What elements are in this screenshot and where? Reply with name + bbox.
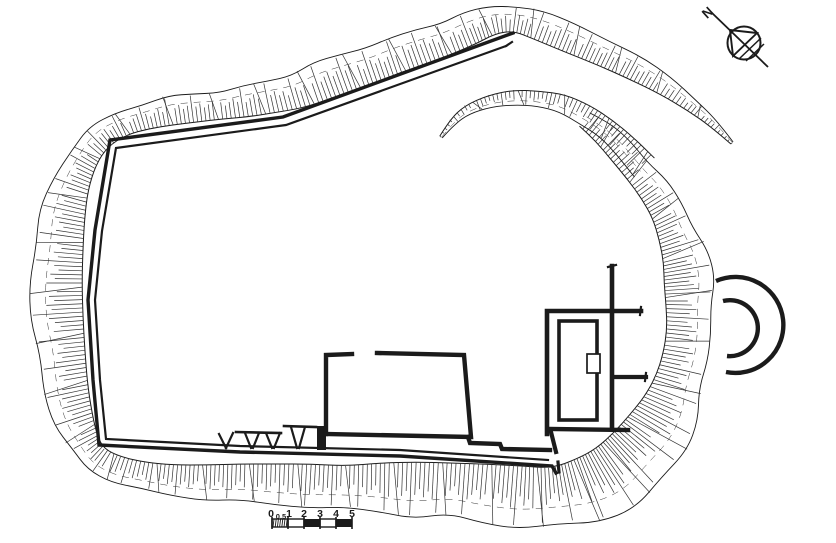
hachure-tick — [688, 105, 693, 111]
hachure-tick — [531, 9, 534, 38]
hachure-tick — [524, 466, 526, 505]
hachure-tick — [684, 103, 688, 108]
hachure-tick — [271, 95, 275, 113]
hachure-tick — [664, 273, 691, 277]
hachure-tick — [472, 24, 479, 43]
hachure-tick — [450, 37, 456, 53]
hachure-tick — [345, 70, 352, 90]
hachure-tick — [668, 90, 674, 99]
hachure-tick — [402, 462, 403, 496]
hachure-tick — [659, 233, 678, 240]
hachure-tick — [454, 116, 458, 121]
hachure-tick — [445, 463, 447, 496]
hachure-tick — [79, 421, 94, 427]
hachure-tick — [200, 104, 202, 122]
scale-cell-black — [304, 519, 320, 527]
hachure-tick — [648, 390, 672, 399]
hachure-tick — [518, 90, 524, 105]
hachure-tick — [225, 106, 227, 119]
hachure-tick — [175, 108, 177, 124]
hachure-tick — [57, 244, 83, 247]
hachure-tick — [130, 122, 134, 133]
hachure-tick — [56, 230, 84, 234]
hachure-tick — [616, 47, 622, 73]
hachure-tick — [185, 465, 186, 482]
hachure-tick — [666, 313, 689, 314]
hachure-tick — [583, 122, 589, 129]
hachure-tick — [484, 97, 486, 103]
hachure-tick — [610, 129, 624, 145]
hachure-tick — [711, 124, 714, 127]
north-arrow: N — [699, 4, 768, 67]
hachure-tick — [58, 257, 83, 259]
hachure-tick — [644, 397, 681, 413]
tower-outer-arc — [716, 277, 783, 373]
hachure-tick — [660, 365, 701, 375]
scale-bar-graphic — [272, 517, 352, 529]
site-plan-drawing: N 0 0.5 1 2 3 4 5 — [0, 0, 836, 543]
hachure-tick — [662, 357, 689, 362]
hachure-tick — [136, 115, 141, 131]
hachure-tick — [54, 300, 82, 301]
hachure-tick — [44, 380, 87, 394]
hachure-tick — [623, 422, 673, 460]
hachure-tick — [398, 463, 399, 488]
hachure-tick — [505, 92, 506, 100]
hachure-tick — [513, 8, 516, 31]
hachure-tick — [120, 458, 124, 470]
hachure-tick — [52, 308, 83, 310]
hachure-tick — [163, 464, 165, 479]
hachure-tick — [190, 96, 193, 123]
hachure-tick — [386, 41, 397, 73]
hachure-tick — [458, 35, 463, 49]
hachure-tick — [55, 320, 83, 322]
hachure-tick — [632, 177, 643, 186]
hachure-tick — [71, 175, 91, 183]
hachure-tick — [635, 409, 667, 427]
hachure-tick — [644, 193, 657, 202]
hachure-tick — [233, 98, 236, 117]
hachure-tick — [472, 464, 474, 495]
hachure-tick — [437, 27, 448, 56]
hachure-tick — [367, 464, 368, 494]
band-texture-contour — [441, 101, 640, 172]
hachure-tick — [455, 463, 456, 486]
hachure-tick — [663, 353, 685, 357]
hachure-tick — [601, 444, 623, 474]
hachure-tick — [594, 450, 615, 485]
hachure-tick — [288, 95, 292, 109]
hachure-tick — [94, 143, 104, 152]
hachure-tick — [129, 460, 133, 474]
hachure-tick — [565, 463, 573, 496]
hachure-tick — [667, 321, 688, 322]
hachure-tick — [610, 123, 616, 130]
hachure-tick — [635, 172, 657, 189]
hachure-tick — [524, 19, 528, 35]
hachure-tick — [154, 113, 157, 127]
hachure-tick — [266, 464, 267, 490]
hachure-tick — [62, 355, 85, 358]
building-wall — [640, 307, 641, 315]
scale-bar: 0 0.5 1 2 3 4 5 — [268, 508, 355, 529]
hachure-tick — [300, 90, 305, 106]
building-walls — [326, 265, 646, 472]
hachure-tick — [569, 98, 573, 107]
hachure-tick — [150, 116, 153, 128]
hachure-tick — [389, 463, 390, 497]
north-label: N — [699, 4, 716, 22]
hachure-tick — [240, 88, 244, 117]
hachure-tick — [649, 203, 664, 212]
hachure-tick — [363, 69, 369, 85]
hachure-tick — [640, 403, 674, 420]
hachure-tick — [627, 142, 638, 153]
hachure-tick — [159, 464, 161, 481]
hachure-tick — [231, 464, 232, 488]
hachure-tick — [246, 102, 248, 117]
hachure-tick — [458, 463, 460, 495]
hachure-tick — [61, 325, 84, 327]
hachure-tick — [58, 342, 84, 345]
hachure-tick — [728, 140, 729, 141]
hachure-tick — [667, 325, 692, 327]
building-wall — [549, 429, 628, 430]
hachure-tick — [331, 465, 333, 505]
hachure-tick — [58, 350, 85, 353]
hachure-tick — [63, 227, 84, 230]
hachure-tick — [558, 94, 561, 104]
hachure-tick — [526, 91, 527, 105]
enclosure-wall-line — [506, 42, 512, 46]
hachure-tick — [566, 40, 571, 52]
hachure-tick — [642, 155, 651, 164]
hachure-tick — [698, 105, 701, 117]
hachure-tick — [492, 464, 493, 524]
hachure-tick — [445, 128, 447, 130]
hachure-tick — [411, 45, 419, 67]
hachure-tick — [250, 98, 253, 116]
hachure-tick — [493, 465, 496, 499]
hachure-tick — [664, 276, 696, 280]
building-wall — [608, 265, 616, 267]
hachure-tick — [510, 466, 513, 508]
hachure-tick — [627, 56, 638, 77]
hachure-tick — [721, 133, 723, 135]
hachure-tick — [358, 465, 359, 507]
hachure-tick — [411, 33, 423, 65]
hachure-tick — [258, 99, 261, 115]
hachure-tick — [62, 214, 84, 219]
hachure-tick — [327, 465, 328, 488]
hachure-tick — [652, 383, 701, 393]
hachure-tick — [478, 27, 483, 41]
hachure-tick — [596, 449, 633, 506]
scale-label-0: 0 — [268, 508, 274, 520]
hachure-tick — [549, 468, 551, 499]
hachure-tick — [428, 462, 429, 491]
hachure-tick — [59, 222, 84, 226]
hachure-tick — [568, 462, 575, 490]
hachure-tick — [183, 109, 185, 123]
hachure-tick — [661, 84, 668, 95]
hachure-tick — [121, 459, 129, 483]
hachure-tick — [54, 252, 83, 255]
hachure-tick — [501, 93, 503, 106]
hachure-tick — [480, 464, 483, 499]
hachure-tick — [149, 463, 153, 489]
hachure-tick — [50, 274, 82, 275]
hachure-tick — [56, 359, 86, 363]
hachure-tick — [283, 91, 288, 110]
hachure-tick — [599, 115, 605, 123]
hachure-tick — [469, 104, 471, 108]
hachure-tick — [665, 288, 699, 290]
hachure-tick — [187, 106, 189, 123]
hachure-tick — [467, 464, 470, 500]
hachure-tick — [189, 465, 190, 487]
hachure-tick — [419, 462, 420, 489]
hachure-tick — [115, 113, 130, 134]
hachure-tick — [479, 10, 492, 36]
hachure-tick — [137, 461, 140, 476]
hachure-tick — [274, 91, 279, 112]
scale-cell — [320, 519, 336, 527]
hachure-tick — [630, 161, 647, 183]
hachure-tick — [538, 26, 543, 40]
hachure-tick — [680, 98, 686, 106]
hachure-tick — [546, 31, 551, 44]
hachure-tick — [88, 131, 106, 150]
hachure-tick — [647, 193, 673, 209]
hachure-tick — [257, 464, 258, 487]
hachure-tick — [198, 465, 199, 481]
hachure-tick — [576, 102, 581, 112]
hachure-tick — [279, 464, 280, 503]
hachure-tick — [95, 449, 104, 461]
hachure-tick — [496, 15, 499, 33]
hachure-tick — [666, 337, 693, 340]
hachure-tick — [666, 305, 692, 306]
building-wall — [326, 353, 471, 437]
hachure-tick — [661, 361, 681, 365]
hachure-tick — [319, 465, 320, 486]
hachure-tick — [509, 91, 510, 98]
hachure-tick — [49, 316, 83, 318]
hachure-tick — [292, 464, 293, 488]
hachure-tick — [264, 83, 270, 113]
hachure-tick — [262, 464, 263, 484]
hachure-tick — [666, 309, 696, 310]
hachure-tick — [301, 464, 302, 491]
hachure-tick — [48, 193, 87, 198]
hachure-tick — [54, 329, 84, 332]
hachure-tick — [603, 442, 650, 492]
hachure-tick — [423, 40, 431, 63]
hachure-tick — [530, 91, 531, 99]
hachure-tick — [585, 454, 603, 493]
hachure-tick — [133, 119, 138, 132]
hachure-tick — [660, 235, 683, 243]
hachure-tick — [67, 397, 89, 403]
hachure-tick — [541, 467, 542, 522]
hachure-tick — [275, 464, 276, 483]
hachure-tick — [650, 387, 696, 404]
scale-label-1: 1 — [286, 508, 292, 520]
hachure-tick — [440, 136, 441, 137]
hachure-tick — [157, 463, 159, 491]
hachure-tick — [506, 16, 507, 32]
hachure-tick — [236, 464, 237, 485]
hachure-tick — [336, 466, 337, 491]
hachure-tick — [664, 285, 693, 288]
band-inner-contour — [82, 32, 731, 467]
hachure-tick — [102, 452, 111, 466]
hachure-tick — [586, 118, 598, 132]
hachure-tick — [546, 92, 548, 102]
hachure-tick — [423, 462, 425, 497]
hachure-tick — [327, 72, 336, 97]
doorway-marker — [587, 354, 600, 373]
hachure-tick — [167, 465, 169, 484]
hachure-tick — [534, 13, 544, 40]
hachure-tick — [145, 114, 149, 129]
hachure-tick — [654, 213, 671, 222]
hachure-tick — [642, 187, 659, 199]
hachure-tick — [462, 463, 466, 514]
site-plan-page: N 0 0.5 1 2 3 4 5 — [0, 0, 836, 543]
hachure-tick — [550, 30, 556, 46]
hachure-tick — [432, 463, 434, 500]
hachure-tick — [657, 224, 677, 233]
hachure-tick — [457, 113, 459, 116]
hachure-tick — [491, 17, 495, 33]
hachure-tick — [158, 109, 162, 127]
hachure-tick — [324, 77, 332, 99]
hachure-tick — [279, 95, 283, 111]
gate-line — [299, 427, 305, 448]
hachure-tick — [718, 130, 720, 132]
hachure-tick — [645, 195, 661, 205]
hachure-tick — [574, 460, 600, 521]
hachure-tick — [724, 136, 726, 138]
hachure-tick — [533, 467, 534, 508]
hachure-tick — [664, 349, 693, 354]
hachure-tick — [33, 312, 83, 315]
hachure-tick — [341, 466, 342, 486]
hachure-tick — [565, 96, 569, 107]
hachure-tick — [30, 287, 82, 293]
hachure-tick — [534, 91, 535, 101]
hachure-tick — [206, 465, 207, 484]
hachure-tick — [384, 62, 389, 77]
hachure-tick — [701, 116, 704, 120]
hachure-tick — [219, 465, 220, 482]
hachure-tick — [558, 23, 569, 49]
hachure-tick — [305, 464, 307, 505]
hachure-tick — [666, 333, 689, 335]
hachure-tick — [244, 464, 245, 487]
hachure-tick — [288, 78, 297, 109]
hachure-tick — [520, 466, 522, 496]
hachure-tick — [604, 46, 615, 68]
hachure-tick — [608, 145, 620, 156]
hachure-tick — [62, 401, 90, 409]
hachure-tick — [460, 16, 472, 46]
hachure-tick — [570, 100, 578, 117]
building-wall — [468, 437, 550, 450]
gate-line — [284, 426, 316, 427]
hachure-tick — [288, 464, 289, 492]
hachure-tick — [527, 24, 531, 37]
hachure-tick — [438, 43, 443, 58]
hachure-tick — [74, 147, 100, 159]
gate-line — [274, 433, 280, 448]
compass-hatch-line — [746, 44, 764, 61]
hachure-tick — [507, 465, 509, 497]
hachure-tick — [47, 389, 88, 398]
hachure-tick — [146, 463, 149, 480]
hachure-tick — [208, 104, 210, 120]
hachure-tick — [375, 63, 381, 80]
hachure-tick — [179, 105, 182, 124]
hachure-tick — [254, 84, 266, 114]
hachure-tick — [370, 60, 378, 82]
hachure-tick — [415, 462, 416, 495]
hachure-tick — [653, 82, 658, 90]
hachure-tick — [616, 154, 629, 166]
scale-cell-black — [336, 519, 352, 527]
hachure-tick — [653, 198, 679, 219]
hachure-tick — [406, 462, 407, 491]
hachure-tick — [237, 102, 239, 118]
band-inner-contour — [440, 90, 655, 158]
hachure-tick — [577, 459, 592, 501]
hachure-tick — [597, 53, 602, 64]
hachure-tick — [43, 205, 85, 214]
hachure-tick — [73, 417, 93, 424]
hachure-tick — [59, 270, 83, 271]
hachure-tick — [81, 156, 96, 165]
hachure-tick — [229, 102, 231, 118]
hachure-tick — [548, 93, 551, 108]
hachure-tick — [132, 460, 136, 478]
hachure-tick — [502, 465, 505, 503]
hachure-tick — [297, 71, 314, 104]
hachure-tick — [623, 61, 631, 76]
hachure-tick — [461, 109, 464, 114]
hachure-tick — [410, 462, 412, 515]
hachure-tick — [349, 466, 350, 489]
hachure-tick — [210, 465, 211, 489]
hachure-tick — [498, 465, 500, 493]
hachure-tick — [284, 464, 285, 485]
hachure-tick — [664, 265, 709, 273]
hachure-tick — [76, 168, 92, 176]
hachure-tick — [655, 216, 676, 226]
hachure-tick — [542, 92, 543, 99]
hachure-tick — [731, 143, 732, 144]
hachure-tick — [204, 107, 206, 121]
hachure-tick — [634, 71, 639, 81]
hachure-tick — [240, 464, 241, 481]
gate-line — [291, 427, 297, 448]
semicircular-tower — [716, 277, 783, 373]
hachure-tick — [323, 465, 324, 492]
hachure-tick — [46, 304, 82, 306]
hachure-tick — [665, 345, 690, 349]
